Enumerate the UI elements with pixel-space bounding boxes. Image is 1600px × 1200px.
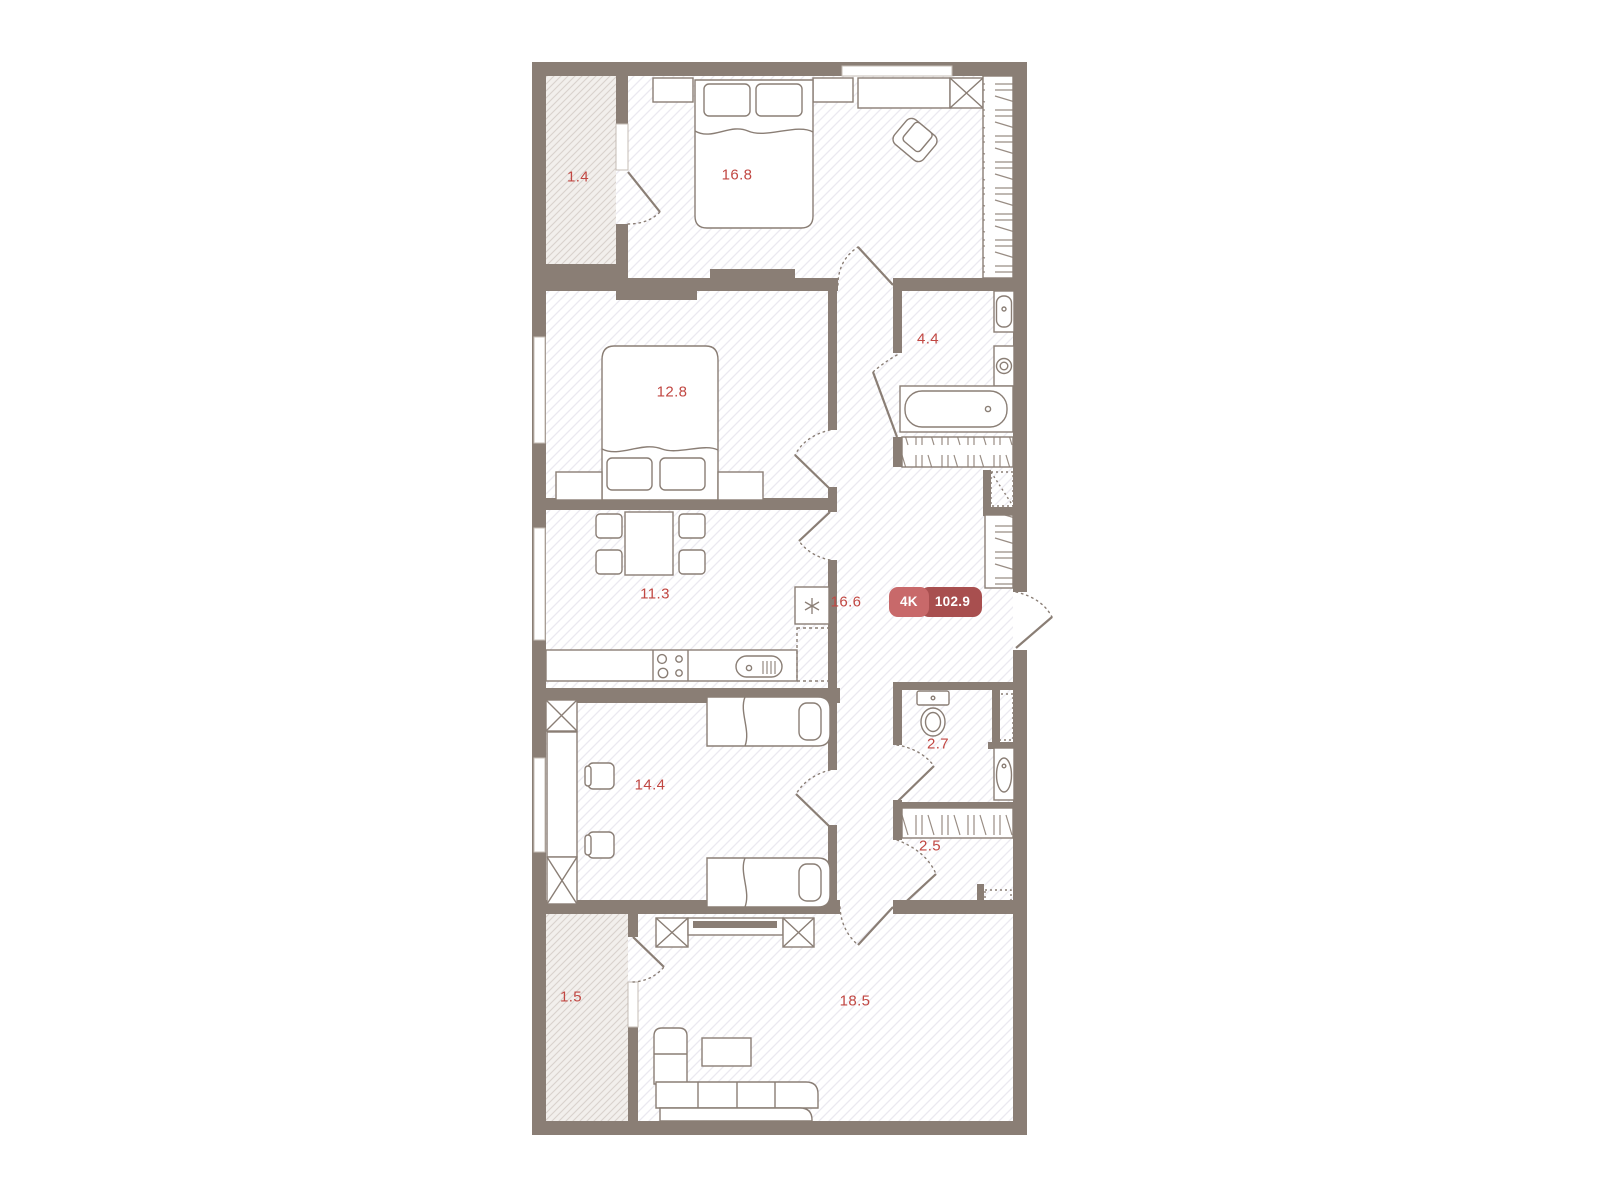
pillow	[704, 84, 750, 116]
chair	[679, 550, 705, 574]
chair	[596, 514, 622, 538]
room-area-label-bedroom-main: 16.8	[722, 167, 753, 184]
floor-plan-page: 1.4 16.8 4.4 12.8 11.3 16.6 2.7 14.4 2.5…	[0, 0, 1600, 1200]
chair	[588, 763, 614, 789]
floor-plan-drawing	[0, 0, 1600, 1200]
chair	[679, 514, 705, 538]
balcony-bottom-floor	[546, 914, 628, 1121]
bathtub-icon	[900, 386, 1013, 432]
room-area-label-hallway: 16.6	[831, 594, 862, 611]
window	[842, 66, 952, 76]
window	[534, 337, 545, 443]
room-area-label-children-room: 14.4	[635, 777, 666, 794]
nightstand	[556, 472, 602, 500]
tv-icon	[693, 921, 777, 928]
wardrobe-rack	[983, 76, 1013, 278]
pillow	[799, 703, 821, 740]
wardrobe-x-icon	[546, 700, 577, 731]
room-area-label-balcony-top: 1.4	[567, 169, 589, 186]
window	[616, 124, 628, 170]
room-area-label-bathroom: 4.4	[917, 331, 939, 348]
wardrobe-x-icon	[547, 857, 577, 904]
dining-table	[625, 512, 673, 575]
apartment-total-area-badge: 102.9	[920, 587, 982, 617]
chair	[588, 832, 614, 858]
nightstand	[653, 78, 693, 102]
window	[534, 758, 545, 852]
pillow	[756, 84, 802, 116]
chair	[596, 550, 622, 574]
nightstand	[813, 78, 853, 102]
wardrobe-x-icon	[950, 78, 983, 108]
nightstand	[718, 472, 763, 500]
room-area-label-storage: 2.5	[919, 838, 941, 855]
desk	[547, 732, 577, 857]
wardrobe-rack	[902, 437, 1013, 467]
coffee-table	[702, 1038, 751, 1066]
sink-icon	[994, 748, 1014, 800]
shelf-unit	[858, 78, 950, 108]
radiator-bar	[616, 291, 697, 300]
room-area-label-wc: 2.7	[927, 736, 949, 753]
room-area-label-living-room: 18.5	[840, 993, 871, 1010]
radiator-bar	[710, 269, 795, 278]
chair-back	[585, 766, 591, 786]
room-area-label-balcony-bottom: 1.5	[560, 989, 582, 1006]
window	[628, 982, 638, 1027]
wardrobe-rack	[902, 808, 1013, 838]
sink-icon	[994, 291, 1014, 332]
washing-machine-icon	[994, 346, 1014, 386]
window	[534, 528, 545, 640]
apartment-type-badge: 4K	[889, 587, 929, 617]
room-area-label-kitchen: 11.3	[640, 586, 670, 603]
pillow	[607, 458, 652, 490]
kitchen-sink	[736, 656, 782, 677]
pillow	[799, 864, 821, 901]
chair-back	[585, 835, 591, 855]
apartment-badge: 4K 102.9	[889, 587, 982, 617]
wardrobe-rack	[985, 515, 1013, 588]
pillow	[660, 458, 705, 490]
room-area-label-bedroom-second: 12.8	[657, 384, 688, 401]
